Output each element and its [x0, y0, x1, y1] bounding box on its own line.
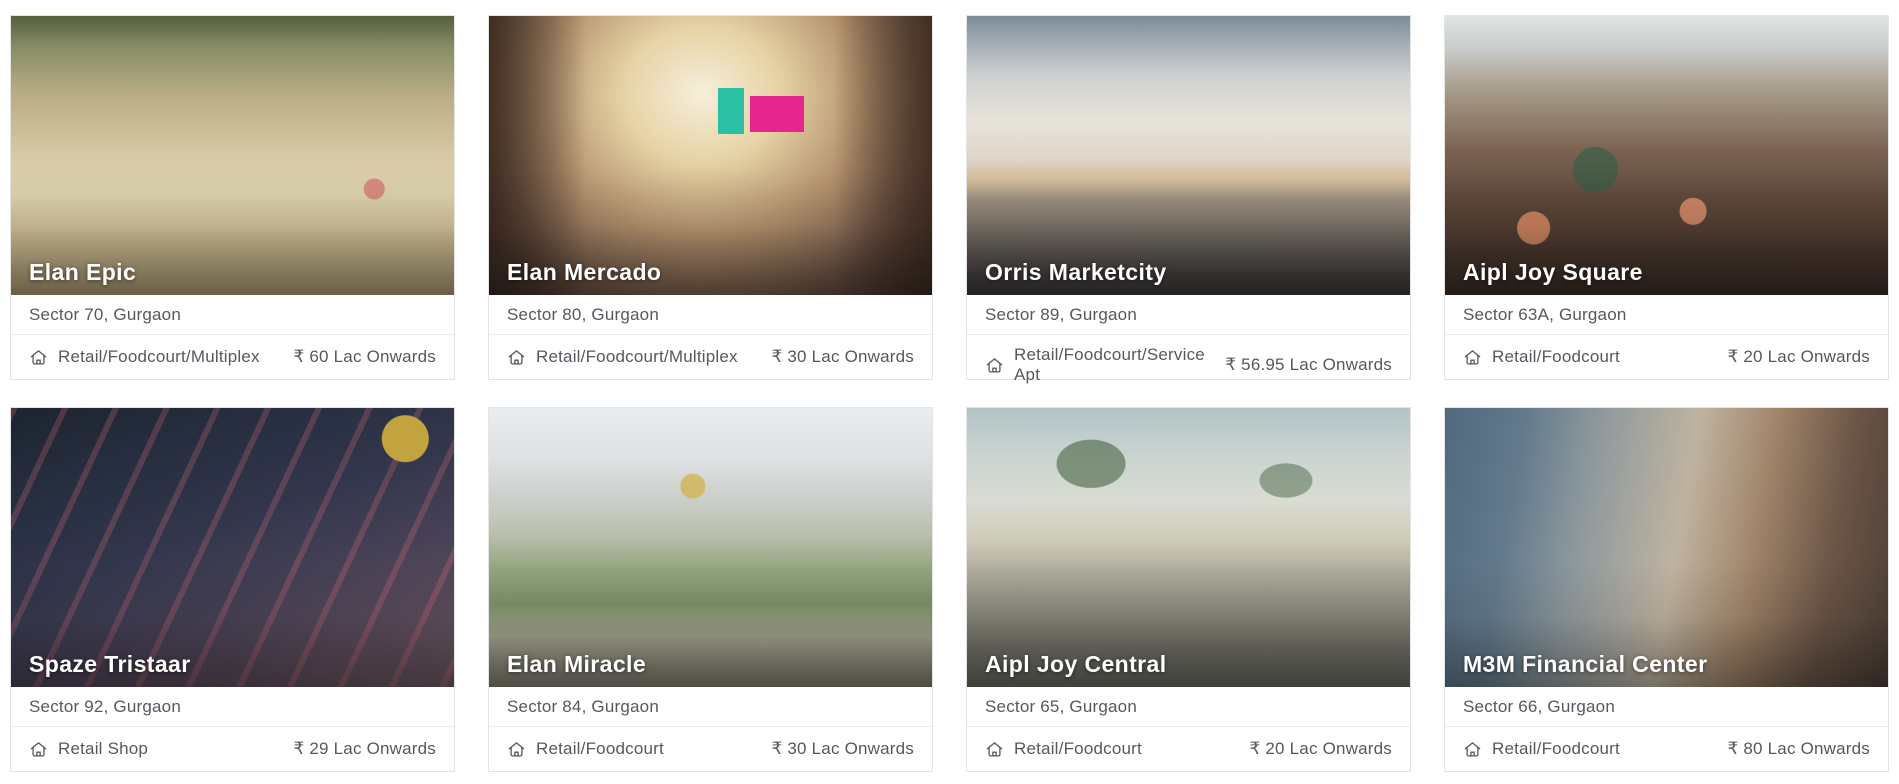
home-outline-icon: [985, 740, 1004, 759]
home-outline-icon: [29, 348, 48, 367]
home-outline-icon: [1463, 348, 1482, 367]
home-outline-icon: [507, 740, 526, 759]
image-gradient-overlay: [489, 408, 932, 687]
property-price: ₹ 29 Lac Onwards: [283, 739, 436, 759]
home-outline-icon: [1463, 740, 1482, 759]
property-type: Retail/Foodcourt: [1463, 739, 1620, 759]
property-type-label: Retail/Foodcourt: [1014, 739, 1142, 759]
property-type-label: Retail/Foodcourt: [1492, 739, 1620, 759]
property-image[interactable]: Aipl Joy Central: [967, 408, 1410, 687]
property-price: ₹ 30 Lac Onwards: [761, 347, 914, 367]
property-card[interactable]: Aipl Joy Central Sector 65, Gurgaon Reta…: [966, 407, 1411, 772]
property-type-label: Retail Shop: [58, 739, 148, 759]
property-card-footer: Retail/Foodcourt/Multiplex ₹ 60 Lac Onwa…: [11, 335, 454, 379]
property-card[interactable]: M3M Financial Center Sector 66, Gurgaon …: [1444, 407, 1889, 772]
property-card-footer: Retail/Foodcourt ₹ 30 Lac Onwards: [489, 727, 932, 771]
property-card[interactable]: Elan Epic Sector 70, Gurgaon Retail/Food…: [10, 15, 455, 380]
property-listings-grid: Elan Epic Sector 70, Gurgaon Retail/Food…: [0, 0, 1899, 784]
property-image[interactable]: Spaze Tristaar: [11, 408, 454, 687]
image-gradient-overlay: [967, 16, 1410, 295]
property-title[interactable]: Aipl Joy Central: [985, 651, 1167, 678]
property-price: ₹ 56.95 Lac Onwards: [1215, 355, 1392, 375]
property-location: Sector 63A, Gurgaon: [1445, 295, 1888, 335]
property-image[interactable]: Elan Mercado: [489, 16, 932, 295]
image-gradient-overlay: [489, 16, 932, 295]
property-location: Sector 84, Gurgaon: [489, 687, 932, 727]
property-card-footer: Retail/Foodcourt ₹ 80 Lac Onwards: [1445, 727, 1888, 771]
property-price: ₹ 30 Lac Onwards: [761, 739, 914, 759]
property-card-footer: Retail/Foodcourt ₹ 20 Lac Onwards: [1445, 335, 1888, 379]
property-image[interactable]: Orris Marketcity: [967, 16, 1410, 295]
property-card[interactable]: Orris Marketcity Sector 89, Gurgaon Reta…: [966, 15, 1411, 380]
property-type: Retail/Foodcourt: [507, 739, 664, 759]
image-gradient-overlay: [11, 408, 454, 687]
property-card-footer: Retail/Foodcourt/Service Apt ₹ 56.95 Lac…: [967, 335, 1410, 395]
property-price: ₹ 80 Lac Onwards: [1717, 739, 1870, 759]
property-price: ₹ 20 Lac Onwards: [1239, 739, 1392, 759]
property-card-footer: Retail/Foodcourt ₹ 20 Lac Onwards: [967, 727, 1410, 771]
property-card-footer: Retail Shop ₹ 29 Lac Onwards: [11, 727, 454, 771]
property-title[interactable]: Elan Epic: [29, 259, 136, 286]
property-card[interactable]: Elan Mercado Sector 80, Gurgaon Retail/F…: [488, 15, 933, 380]
property-type-label: Retail/Foodcourt/Multiplex: [58, 347, 260, 367]
property-image[interactable]: M3M Financial Center: [1445, 408, 1888, 687]
property-image[interactable]: Aipl Joy Square: [1445, 16, 1888, 295]
property-location: Sector 92, Gurgaon: [11, 687, 454, 727]
property-location: Sector 66, Gurgaon: [1445, 687, 1888, 727]
property-price: ₹ 60 Lac Onwards: [283, 347, 436, 367]
property-type-label: Retail/Foodcourt: [536, 739, 664, 759]
property-location: Sector 89, Gurgaon: [967, 295, 1410, 335]
property-title[interactable]: Spaze Tristaar: [29, 651, 191, 678]
property-card-footer: Retail/Foodcourt/Multiplex ₹ 30 Lac Onwa…: [489, 335, 932, 379]
property-location: Sector 70, Gurgaon: [11, 295, 454, 335]
property-title[interactable]: M3M Financial Center: [1463, 651, 1707, 678]
property-title[interactable]: Elan Miracle: [507, 651, 646, 678]
property-price: ₹ 20 Lac Onwards: [1717, 347, 1870, 367]
home-outline-icon: [985, 356, 1004, 375]
property-card[interactable]: Aipl Joy Square Sector 63A, Gurgaon Reta…: [1444, 15, 1889, 380]
property-type-label: Retail/Foodcourt: [1492, 347, 1620, 367]
property-type: Retail/Foodcourt/Service Apt: [985, 345, 1215, 385]
image-gradient-overlay: [1445, 408, 1888, 687]
property-card[interactable]: Elan Miracle Sector 84, Gurgaon Retail/F…: [488, 407, 933, 772]
image-gradient-overlay: [11, 16, 454, 295]
property-title[interactable]: Elan Mercado: [507, 259, 661, 286]
property-type: Retail Shop: [29, 739, 148, 759]
property-image[interactable]: Elan Epic: [11, 16, 454, 295]
property-type: Retail/Foodcourt/Multiplex: [29, 347, 260, 367]
property-location: Sector 80, Gurgaon: [489, 295, 932, 335]
property-image[interactable]: Elan Miracle: [489, 408, 932, 687]
property-type: Retail/Foodcourt: [1463, 347, 1620, 367]
property-type: Retail/Foodcourt/Multiplex: [507, 347, 738, 367]
home-outline-icon: [507, 348, 526, 367]
property-title[interactable]: Aipl Joy Square: [1463, 259, 1643, 286]
property-type: Retail/Foodcourt: [985, 739, 1142, 759]
image-gradient-overlay: [1445, 16, 1888, 295]
property-title[interactable]: Orris Marketcity: [985, 259, 1167, 286]
property-type-label: Retail/Foodcourt/Multiplex: [536, 347, 738, 367]
property-type-label: Retail/Foodcourt/Service Apt: [1014, 345, 1215, 385]
property-card[interactable]: Spaze Tristaar Sector 92, Gurgaon Retail…: [10, 407, 455, 772]
home-outline-icon: [29, 740, 48, 759]
property-location: Sector 65, Gurgaon: [967, 687, 1410, 727]
image-gradient-overlay: [967, 408, 1410, 687]
